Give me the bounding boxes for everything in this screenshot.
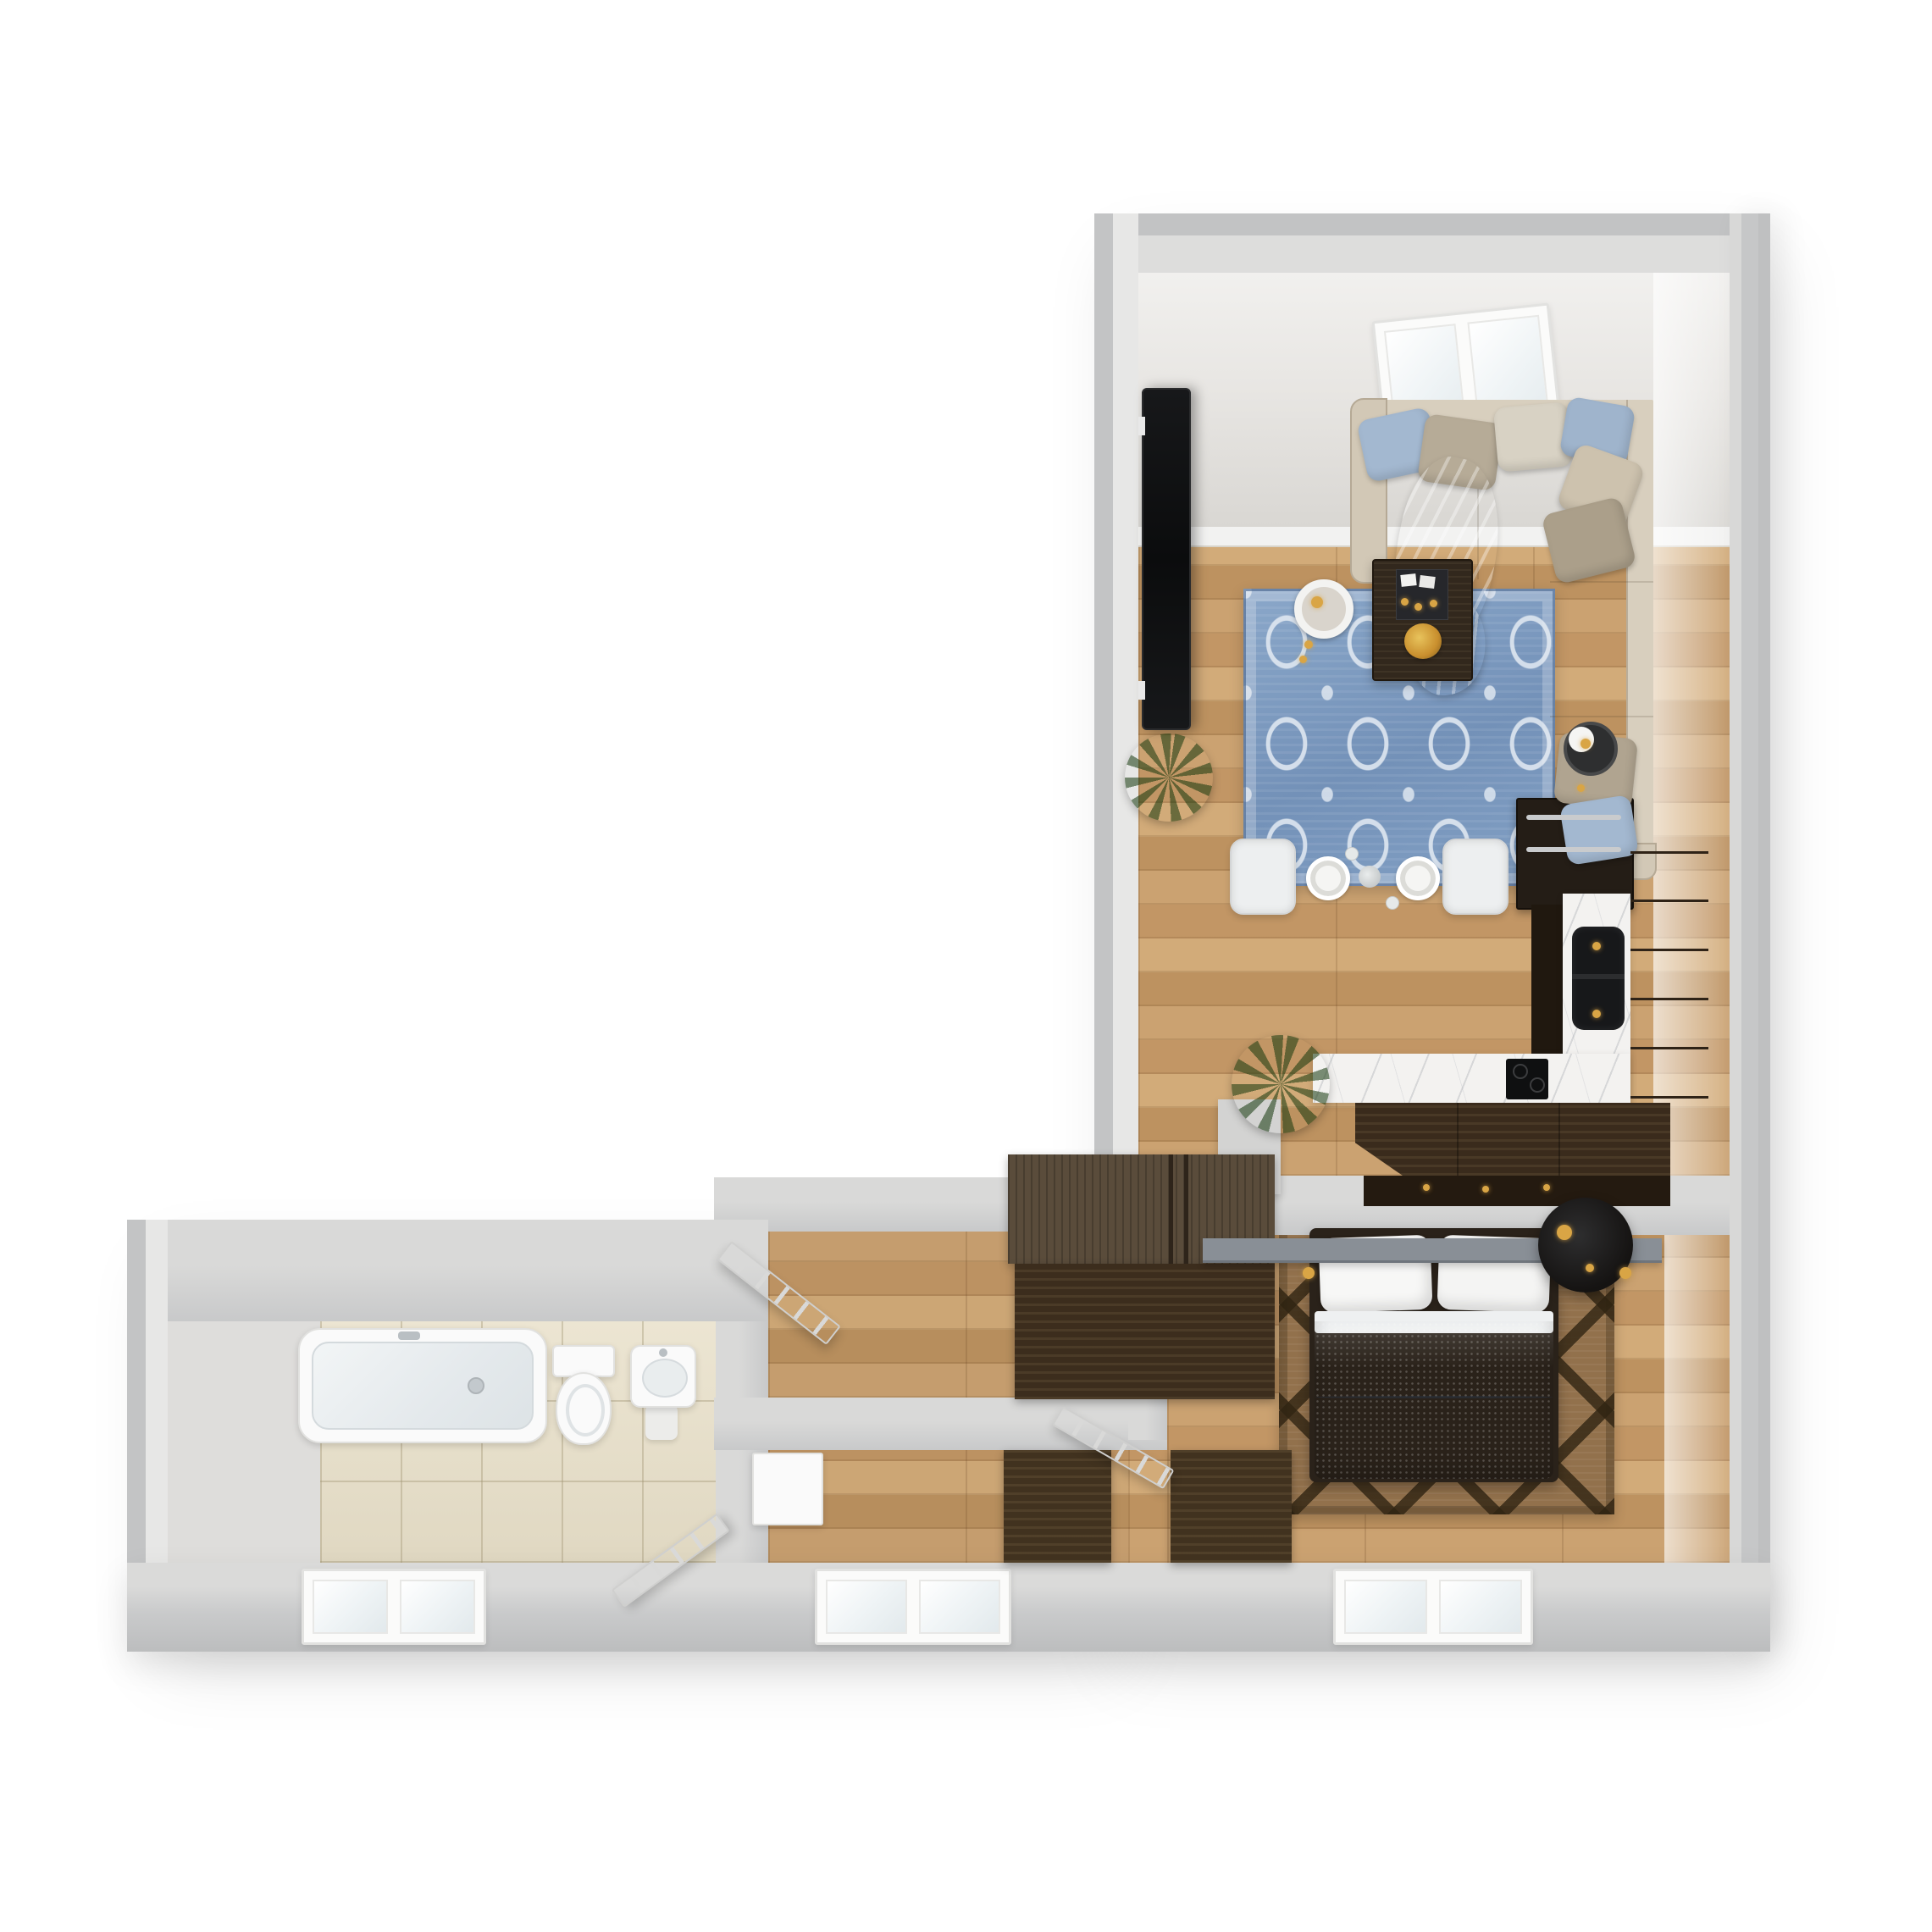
bathtub-faucet xyxy=(398,1331,420,1340)
cabinet-divider xyxy=(1630,1047,1708,1049)
table-centerpiece xyxy=(1359,866,1381,888)
cabinet-divider xyxy=(1630,1096,1708,1099)
photo-card xyxy=(1400,573,1416,587)
wall-lamp xyxy=(1303,1267,1315,1279)
washbasin-pedestal xyxy=(645,1404,678,1440)
west-column-wall xyxy=(1094,213,1138,1232)
second-room-window xyxy=(815,1569,1011,1645)
bathroom-window xyxy=(302,1569,486,1645)
washbasin xyxy=(630,1345,696,1408)
window-pane xyxy=(919,1580,1000,1634)
flower-bouquet xyxy=(1404,623,1442,659)
wall-lamp xyxy=(1619,1267,1631,1279)
decor-gold-dot xyxy=(1304,640,1313,649)
decor-gold-dot xyxy=(1401,598,1409,606)
toilet-seat xyxy=(566,1384,605,1437)
north-wall xyxy=(1094,213,1770,273)
sink-faucet xyxy=(1592,1010,1601,1018)
sofa-seam xyxy=(1550,716,1653,717)
sink-divider xyxy=(1572,974,1625,979)
bedside-lamp xyxy=(1557,1225,1572,1240)
cabinet-divider xyxy=(1630,900,1708,902)
range-handle xyxy=(1526,815,1621,820)
bedside-table xyxy=(1538,1198,1633,1293)
decor-gold-dot xyxy=(1414,603,1422,611)
cabinet-front xyxy=(1531,905,1563,1057)
toilet-bowl xyxy=(556,1372,612,1445)
sink-faucet xyxy=(1592,942,1601,950)
tv-stand-foot xyxy=(1138,681,1145,700)
bottle-glint xyxy=(1423,1184,1430,1191)
bottle-glint xyxy=(1543,1184,1550,1191)
cabinet-divider xyxy=(1630,851,1708,854)
duvet-crease xyxy=(1315,1396,1553,1398)
washbasin-tap xyxy=(659,1348,667,1357)
tv xyxy=(1142,388,1191,730)
decor-gold-dot xyxy=(1430,600,1437,607)
bedroom-east-wall-face xyxy=(1664,1235,1730,1563)
bed-duvet xyxy=(1315,1321,1553,1479)
cabinet-divider xyxy=(1630,998,1708,1000)
dinner-plate xyxy=(1306,856,1350,900)
decor-gold-dot xyxy=(1299,656,1307,663)
wardrobe-front xyxy=(1015,1264,1275,1399)
dinner-plate xyxy=(1396,856,1440,900)
ring-lamp xyxy=(1294,579,1354,639)
washbasin-bowl xyxy=(642,1359,688,1398)
east-wall-face xyxy=(1653,273,1730,1176)
potted-plant xyxy=(1125,733,1213,822)
lamp-gold-accent xyxy=(1580,739,1591,749)
bar-front-shelf xyxy=(1364,1176,1670,1206)
wing-north-wall xyxy=(127,1220,768,1321)
bar-seam xyxy=(1457,1103,1459,1176)
window-pane xyxy=(826,1580,907,1634)
window-pane xyxy=(313,1580,388,1634)
bar-seam xyxy=(1558,1103,1560,1176)
wardrobe-groove xyxy=(1169,1154,1173,1264)
window-pane xyxy=(1439,1580,1522,1634)
decor-gold-dot xyxy=(1586,1264,1594,1272)
white-cabinet xyxy=(752,1453,823,1525)
decor-gold-dot xyxy=(1577,784,1585,792)
bathtub-drain xyxy=(468,1377,484,1394)
tv-stand-foot xyxy=(1138,417,1145,435)
wardrobe-groove xyxy=(1184,1154,1188,1264)
bathtub xyxy=(298,1328,547,1443)
dining-chair xyxy=(1442,839,1509,915)
lamp-gold-accent xyxy=(1311,596,1323,608)
peninsula-counter xyxy=(1313,1054,1630,1103)
bathtub-basin xyxy=(312,1342,534,1430)
cabinet-divider xyxy=(1630,949,1708,951)
window-pane xyxy=(400,1580,475,1634)
drinking-glass xyxy=(1345,847,1359,861)
potted-plant xyxy=(1232,1035,1330,1133)
dresser xyxy=(1171,1450,1292,1563)
drinking-glass xyxy=(1386,896,1399,910)
range-handle xyxy=(1526,847,1621,852)
dining-chair xyxy=(1230,839,1296,915)
dresser xyxy=(1004,1450,1111,1563)
window-pane xyxy=(1344,1580,1427,1634)
photo-card xyxy=(1419,575,1436,589)
throw-pillow-blue xyxy=(1559,794,1639,866)
bar-counter xyxy=(1355,1103,1670,1176)
bedroom-window xyxy=(1333,1569,1533,1645)
cooktop-burner xyxy=(1530,1077,1545,1093)
cooktop-burner xyxy=(1513,1064,1528,1079)
floor-plan xyxy=(0,0,1932,1932)
bottle-glint xyxy=(1482,1186,1489,1193)
east-wall xyxy=(1730,213,1770,1652)
